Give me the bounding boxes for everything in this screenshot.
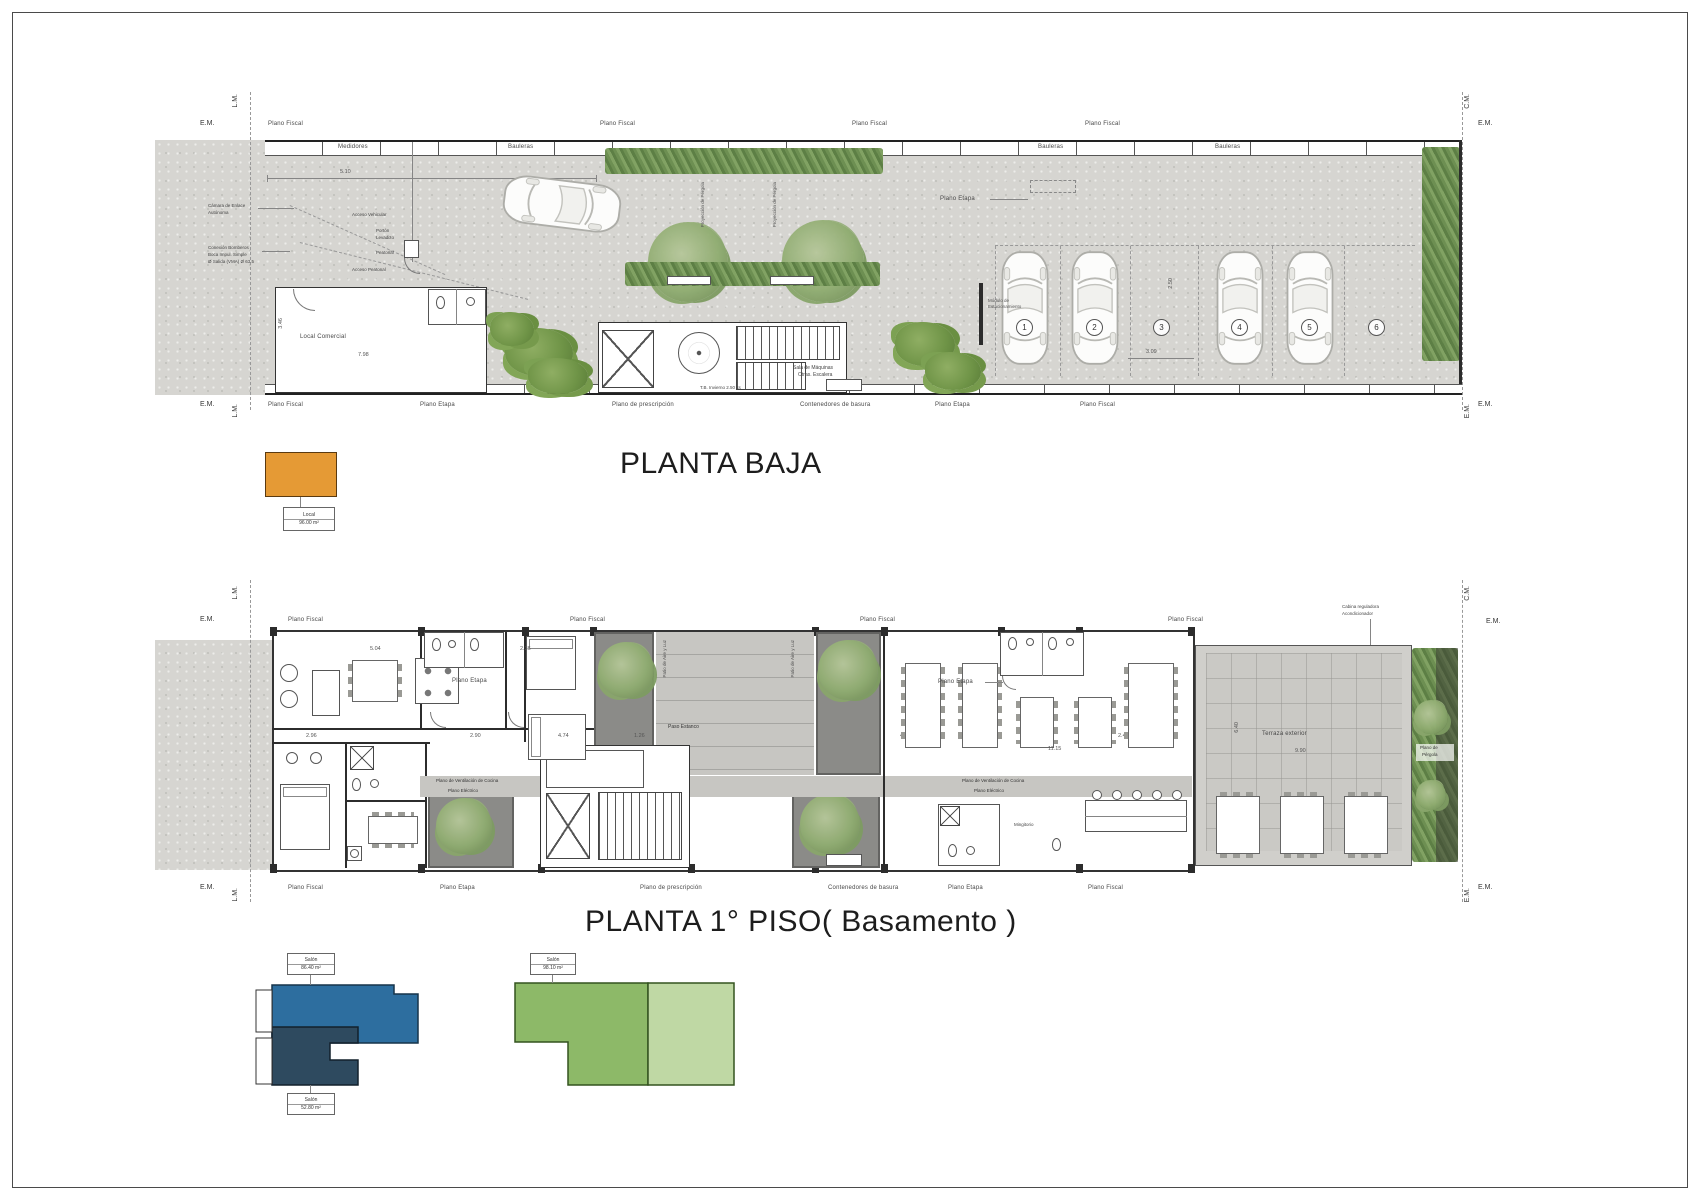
em-mark-vertical: E.M. [1464,404,1471,418]
leader-line [310,1085,311,1093]
legend-blue-top-tag: Salón 86.40 m² [287,953,335,975]
hedge-top [605,148,883,174]
toilet [1008,637,1017,650]
toilet [436,296,445,309]
conexion-label-1: Conexión Bomberos [208,245,249,250]
acceso-vehicular-label: Acceso Vehicular [352,212,387,217]
dim-296: 2.96 [306,733,317,739]
plano-etapa-label: Plano Etapa [935,402,970,408]
toilet [432,638,441,651]
paso-estanco-label: Paso Estanco [668,724,699,730]
bench [770,276,814,285]
pier [1188,864,1195,873]
long-table [1128,663,1174,748]
sink [370,779,379,788]
parking-number-text: 4 [1237,323,1241,332]
parking-divider [1272,246,1273,376]
local-comercial-label: Local Comercial [300,334,346,340]
em-mark: E.M. [1478,884,1492,891]
dim-309: 3.09 [1146,349,1157,355]
stool [1172,790,1182,800]
dim-250: 2.50 [1168,278,1174,289]
legend-blue-top-area: 86.40 m² [288,965,334,972]
leader-line [985,682,1003,683]
conexion-label-2: Boca Impul. Simple [208,252,247,257]
dining-table [352,660,398,702]
property-line-left [250,580,251,902]
pier [1076,864,1083,873]
parking-number-3: 3 [1153,319,1170,336]
leader-line [552,975,553,983]
leader-line [258,208,294,209]
leader-line [990,199,1028,200]
camara-label-2: Autónoma [208,210,229,215]
partition [272,742,430,744]
pier [270,627,277,636]
partition [464,632,465,668]
partition [883,630,885,872]
dim-236: 2.36 [520,646,531,652]
plano-fiscal-label: Plano Fiscal [288,885,323,891]
medidores-label: Medidores [338,144,368,150]
title-planta-baja: PLANTA BAJA [620,447,822,481]
parking-number-text: 3 [1159,323,1163,332]
parking-number-6: 6 [1368,319,1385,336]
plano-electrico-label: Plano Eléctrico [448,788,478,793]
counter-line [1085,816,1187,817]
pergola-plan-label-1: Plano de [1420,745,1438,750]
bauleras-label: Bauleras [508,144,533,150]
dim-1115: 11.15 [1048,746,1061,752]
dim-346: 3.46 [278,318,284,329]
porton-label-1: Portón [376,228,389,233]
washer-drum [350,849,359,858]
spiral-stair [678,332,720,374]
long-table [905,663,941,748]
legend-orange-title: Local [284,512,334,520]
title-planta-1-piso: PLANTA 1° PISO( Basamento ) [585,905,1017,939]
property-line-right [1462,92,1463,410]
vent-cocina-label: Plano de Ventilación de Cocina [436,778,498,783]
parking-divider [1130,246,1131,376]
plano-fiscal-label: Plano Fiscal [852,121,887,127]
legend-green-area: 98.10 m² [531,965,575,972]
lm-mark: L.M. [232,888,239,902]
planter-strip [625,262,880,286]
parking-number-5: 5 [1301,319,1318,336]
em-mark: E.M. [200,120,214,127]
legend-orange-area: 96.00 m² [284,520,334,527]
rug-table [312,670,340,716]
parking-aisle-line [995,245,1415,246]
dim-290: 2.90 [470,733,481,739]
em-mark: E.M. [200,616,214,623]
lm-mark: L.M. [232,586,239,600]
bush [925,352,981,390]
trash-containers [826,379,862,391]
elevator-shaft [602,330,654,388]
bauleras-label: Bauleras [1215,144,1240,150]
kitchen-table [368,816,418,844]
property-line-right [1462,580,1463,902]
parking-divider [995,246,996,376]
leader-line [262,251,290,252]
plano-fiscal-label: Plano Fiscal [268,121,303,127]
plano-fiscal-label: Plano Fiscal [1085,121,1120,127]
elevator-shaft [546,793,590,859]
etapa-dashed-box [1030,180,1076,193]
cm-mark: C.M. [1464,94,1471,109]
trash-containers [826,854,862,866]
dim-line [1128,358,1194,359]
legend-blue-bottom-title: Salón [288,1097,334,1105]
dim-tick [267,175,268,182]
cm-mark: C.M. [1464,586,1471,601]
pier [418,864,425,873]
plano-etapa-label: Plano Etapa [440,885,475,891]
tree [436,798,492,854]
parking-number-4: 4 [1231,319,1248,336]
table [1020,697,1054,748]
pergola-label: Proyección de Pérgola [772,182,777,227]
bench [667,276,711,285]
stool [310,752,322,764]
parking-number-text: 5 [1307,323,1311,332]
tb-escalera-label: T.B. Invierno 2.50 lts [700,385,741,390]
parking-number-text: 1 [1022,323,1026,332]
legend-blue-top-title: Salón [288,957,334,965]
tree [1416,780,1446,810]
tree [598,642,654,698]
stairs [598,792,682,860]
partition [1042,632,1043,676]
pergola-plan-label-2: Pérgola [1422,752,1438,757]
toilet [352,778,361,791]
shower [350,746,374,770]
pergola-label: Proyección de Pérgola [700,182,705,227]
partition [505,632,507,728]
car-spot-2 [1068,243,1122,373]
legend-orange-tag: Local 96.00 m² [283,507,335,531]
urinal [1052,838,1061,851]
camara-label-1: Cámara de Enlace [208,203,245,208]
leader-line [300,497,301,507]
em-mark: E.M. [1478,120,1492,127]
bauleras-label: Bauleras [1038,144,1063,150]
pier [270,864,277,873]
sink [966,846,975,855]
pier [1188,627,1195,636]
plano-etapa-label: Plano Etapa [948,885,983,891]
stairs-upper-run [736,326,840,360]
vent-cocina-label: Plano de Ventilación de Cocina [962,778,1024,783]
hedge-right [1422,147,1460,361]
contenedores-label: Contenedores de basura [800,402,870,408]
dim-126: 1.26 [634,733,645,739]
toilet [948,844,957,857]
patio-aire-label: Patio de Aire y Luz [790,640,795,678]
modulo-label-1: Módulo de [988,298,1009,303]
drawing-sheet: Medidores Bauleras Bauleras Bauleras 5.1… [0,0,1700,1200]
plano-etapa-label: Plano Etapa [940,196,975,202]
modulo-label-2: Estacionamiento [988,304,1021,309]
plano-fiscal-label: Plano Fiscal [860,617,895,623]
lounge-chair [280,664,298,682]
parking-number-text: 2 [1092,323,1096,332]
dim-640: 6.40 [1234,722,1240,733]
stool [286,752,298,764]
plano-fiscal-label: Plano Fiscal [1088,885,1123,891]
stool [1132,790,1142,800]
shower [940,806,960,826]
toilet [1048,637,1057,650]
terrace-table [1216,796,1260,854]
legend-orange-shape [265,452,337,497]
legend-blue-bottom-tag: Salón 52.80 m² [287,1093,335,1115]
sink [466,297,475,306]
conexion-label-3: Ø Salida (VMA) Ø 63.5 [208,259,254,264]
stool [1152,790,1162,800]
contenedores-label: Contenedores de basura [828,885,898,891]
parking-number-1: 1 [1016,319,1033,336]
bush [490,312,534,346]
dim-798: 7.98 [358,352,369,358]
bed [528,714,586,760]
tree [782,220,864,302]
plano-electrico-label: Plano Eléctrico [974,788,1004,793]
tree [818,640,878,700]
property-line-left [250,92,251,410]
dim-474: 4.74 [558,733,569,739]
sink [1026,638,1034,646]
right-wall [1459,140,1462,395]
em-mark: E.M. [1478,401,1492,408]
bed [526,636,576,690]
legend-blue-shape [250,980,435,1115]
acceso-peatonal-label: Acceso Peatonal [352,267,386,272]
car-spot-4 [1213,243,1267,373]
lm-mark: L.M. [232,404,239,418]
legend-green-title: Salón [531,957,575,965]
leader-line [1370,619,1371,645]
patio-aire-label: Patio de Aire y Luz [662,640,667,678]
tree [800,794,860,854]
plano-fiscal-label: Plano Fiscal [268,402,303,408]
parking-number-text: 6 [1374,323,1378,332]
leader-line [310,975,311,985]
plano-prescripcion-label: Plano de prescripción [612,402,674,408]
long-table [962,663,998,748]
otras-escalera-label: Otras. Escalera [798,372,832,378]
table [1078,697,1112,748]
partition [456,289,457,325]
bed [280,784,330,850]
partition [345,800,427,802]
dim-504: 5.04 [370,646,381,652]
em-mark: E.M. [200,884,214,891]
plano-fiscal-label: Plano Fiscal [600,121,635,127]
sidewalk [155,640,272,870]
plano-fiscal-label: Plano Fiscal [1080,402,1115,408]
toilet [470,638,479,651]
parking-number-2: 2 [1086,319,1103,336]
porton-label-2: Levadizo [376,235,394,240]
parking-divider [1198,246,1199,376]
sink [1066,638,1074,646]
plano-etapa-label: Plano Etapa [420,402,455,408]
terrace-table [1280,796,1324,854]
lounge-chair [280,690,298,708]
gate [404,240,419,258]
em-mark: E.M. [1486,618,1500,625]
plano-fiscal-label: Plano Fiscal [570,617,605,623]
tree [1414,700,1448,734]
legend-blue-bottom-area: 52.80 m² [288,1105,334,1112]
dim-510: 5.10 [340,169,351,175]
stool [1112,790,1122,800]
plano-etapa-label: Plano Etapa [938,679,973,685]
mingitorio-label: Mingitorio [1014,822,1034,827]
plano-prescripcion-label: Plano de prescripción [640,885,702,891]
parking-divider [1060,246,1061,376]
bush [528,358,588,394]
terrace-table [1344,796,1388,854]
parking-wall-stub [979,283,983,345]
plano-fiscal-label: Plano Fiscal [1168,617,1203,623]
em-mark: E.M. [200,401,214,408]
plano-fiscal-label: Plano Fiscal [288,617,323,623]
partition [425,742,427,868]
terraza-label: Terraza exterior [1262,731,1307,737]
cabina-label-1: Cabina reguladora [1342,604,1379,609]
sala-maquinas-label: Sala de Máquinas [793,365,833,371]
plano-etapa-label: Plano Etapa [452,678,487,684]
car-spot-5 [1283,243,1337,373]
cabina-label-2: Acondicionador [1342,611,1373,616]
stool [1092,790,1102,800]
lm-mark: L.M. [232,94,239,108]
parking-divider [1344,246,1345,376]
dim-990: 9.90 [1295,748,1306,754]
legend-green-tag: Salón 98.10 m² [530,953,576,975]
peatonal-label: Peatonal [376,250,394,255]
sink [448,640,456,648]
em-mark-vertical: E.M. [1464,888,1471,902]
